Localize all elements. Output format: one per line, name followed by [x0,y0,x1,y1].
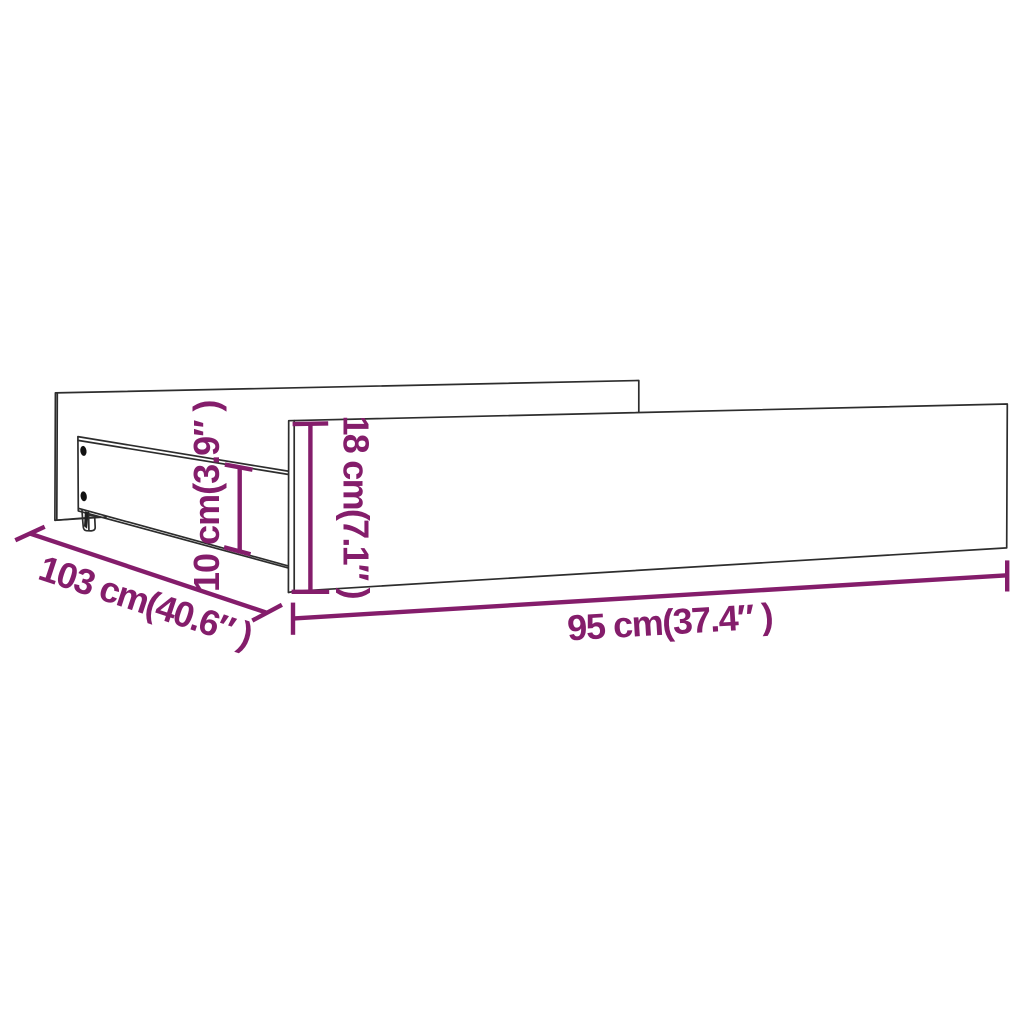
svg-text:10 cm(3.9″ ): 10 cm(3.9″ ) [186,401,227,592]
svg-text:18 cm(7.1″ ): 18 cm(7.1″ ) [336,416,377,599]
